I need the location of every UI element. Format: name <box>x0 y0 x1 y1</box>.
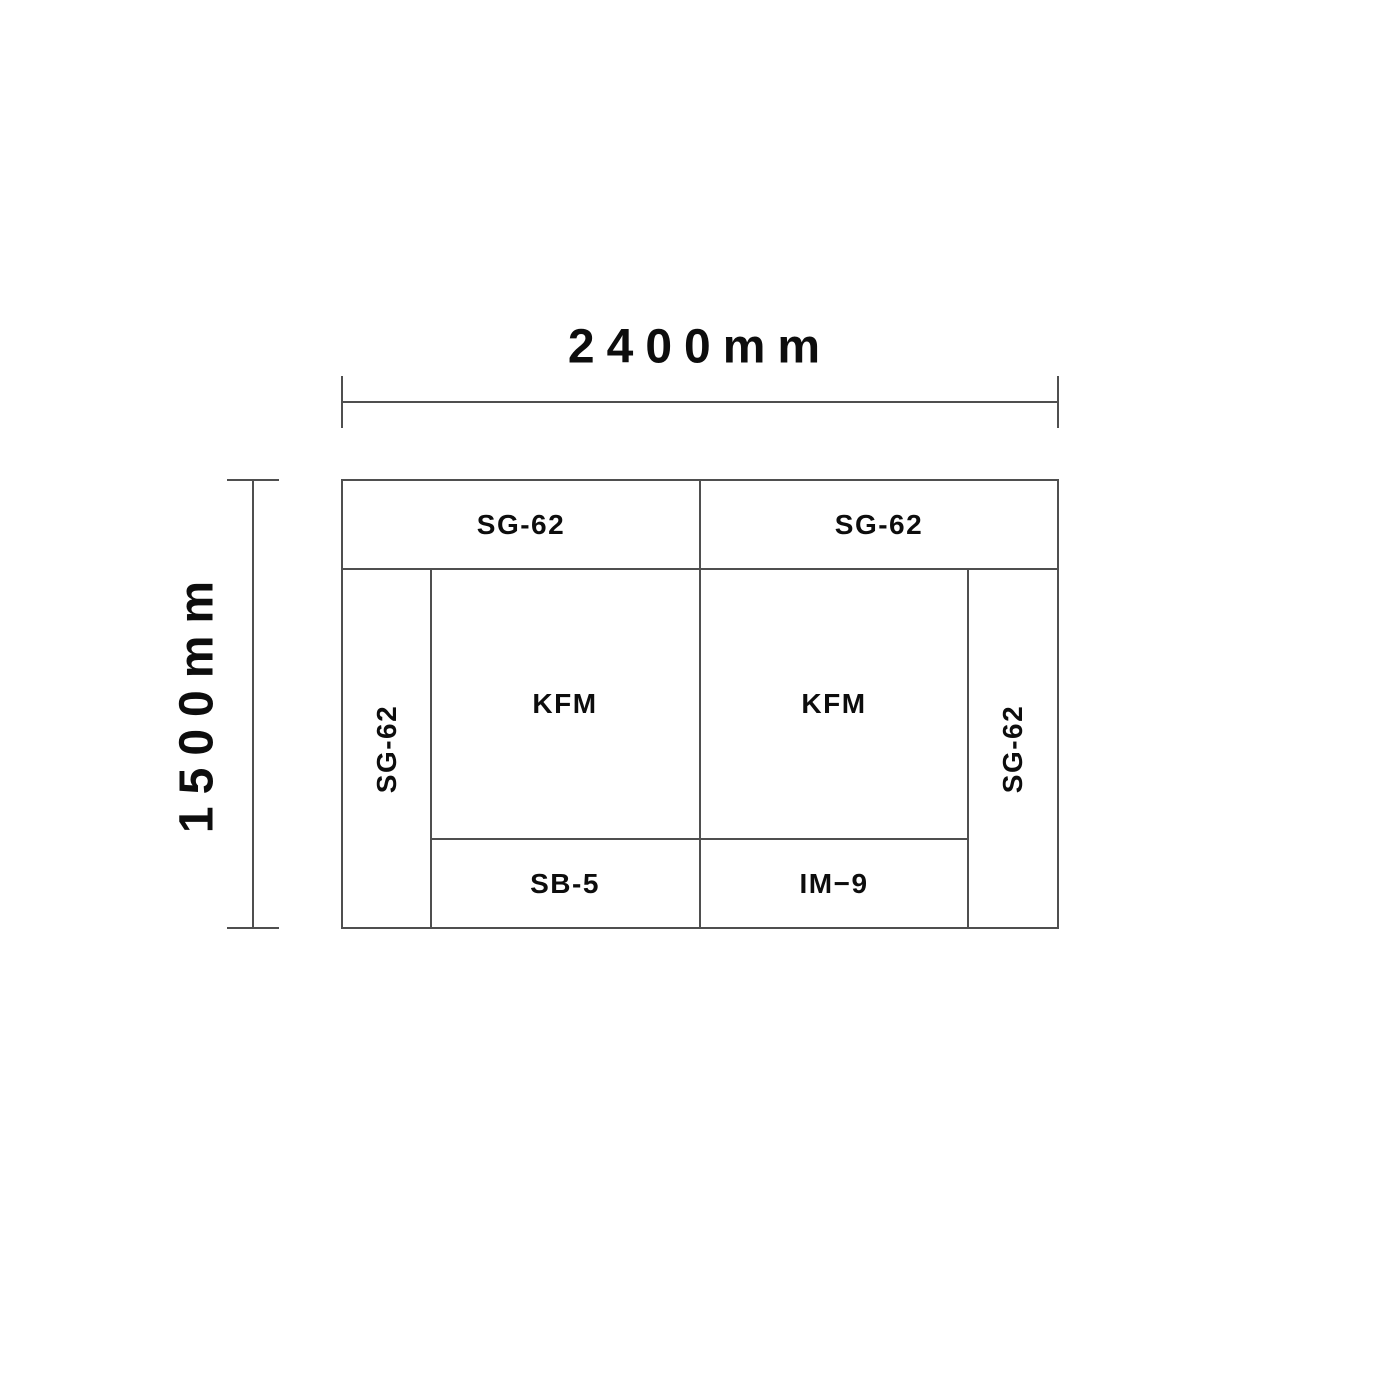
cell-top-right-label: SG-62 <box>835 509 923 541</box>
center-divider-line <box>699 479 701 929</box>
height-dimension-line <box>252 479 254 929</box>
cell-bottom-left-label: SB-5 <box>530 868 600 900</box>
width-dimension-line <box>341 401 1059 403</box>
width-dimension-tick-right <box>1057 376 1059 428</box>
height-dimension-tick-top <box>227 479 279 481</box>
cell-kfm-right-label: KFM <box>801 688 866 720</box>
cell-top-left-label: SG-62 <box>477 509 565 541</box>
right-column-divider-line <box>967 568 969 928</box>
height-dimension-label: 1500mm <box>170 569 225 833</box>
drawing-canvas: 2400mm 1500mm SG-62 SG-62 SG-62 SG-62 KF… <box>0 0 1400 1400</box>
cell-right-column-label: SG-62 <box>997 705 1029 793</box>
cell-kfm-left-label: KFM <box>532 688 597 720</box>
width-dimension-tick-left <box>341 376 343 428</box>
cell-left-column-label: SG-62 <box>371 705 403 793</box>
cell-bottom-right-label: IM−9 <box>799 868 868 900</box>
outer-border-left <box>341 479 343 929</box>
left-column-divider-line <box>430 568 432 928</box>
outer-border-right <box>1057 479 1059 929</box>
width-dimension-label: 2400mm <box>568 320 832 375</box>
height-dimension-tick-bottom <box>227 927 279 929</box>
